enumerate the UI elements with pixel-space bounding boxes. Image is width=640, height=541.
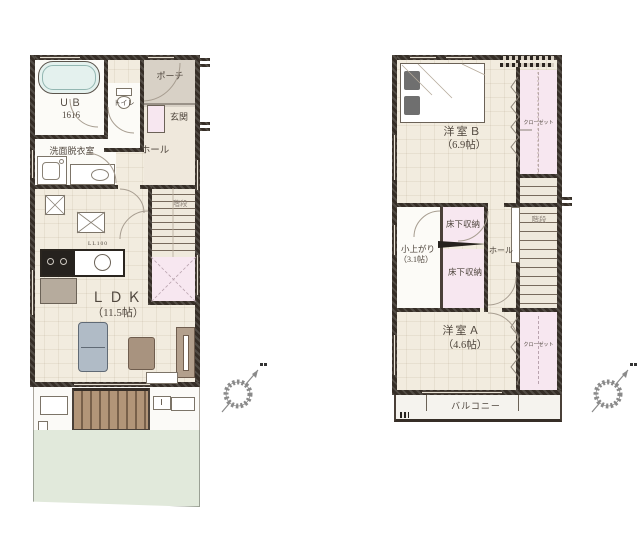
compass-icon-right	[586, 360, 638, 418]
label-closet-b: クローゼット	[521, 121, 556, 127]
wall	[516, 55, 520, 178]
closet-divider	[538, 316, 539, 384]
washer-drum	[42, 162, 60, 180]
wall	[30, 135, 108, 139]
label-underfloor-bottom: 床下収納	[443, 268, 487, 278]
bathtub-inner	[42, 65, 96, 90]
sink	[94, 254, 111, 271]
label-entrance: 玄関	[163, 112, 195, 122]
floor2-plan: 洋室Ｂ （6.9帖） クローゼット 床下収納 小上がり （3.1帖） 床下収納 …	[392, 55, 562, 395]
label-hall-2f: ホール	[486, 247, 516, 256]
pillow	[404, 71, 420, 90]
outer-wall-right	[195, 55, 200, 387]
label-bedroom-b: 洋室Ｂ	[423, 126, 503, 138]
faucet-mark	[161, 399, 162, 405]
compass-icon-left	[216, 360, 268, 418]
drain-hatch	[400, 412, 409, 418]
window	[40, 56, 80, 59]
wall	[516, 174, 562, 178]
label-kitchen-note: LL100	[80, 241, 116, 247]
floorplan-canvas: ポーチ 玄関 ＵＢ 1616 トイレ 洗面脱衣室 ホール 階段 LL100 ＬＤ…	[0, 0, 640, 541]
cabinet-square	[45, 195, 65, 215]
outer-wall-right	[557, 55, 562, 395]
sofa	[78, 322, 108, 372]
wall-mark	[200, 122, 210, 125]
bathtub	[38, 61, 100, 94]
bed	[400, 63, 485, 123]
sofa-seam	[81, 347, 105, 348]
label-underfloor-top: 床下収納	[441, 220, 485, 230]
window	[393, 335, 396, 375]
pillow	[404, 96, 420, 115]
wall	[392, 203, 484, 207]
window	[446, 56, 472, 59]
wall-mark	[200, 64, 210, 67]
tv-screen	[183, 335, 189, 371]
balcony-door-window	[422, 391, 502, 394]
washer-dial	[59, 159, 64, 164]
wall	[30, 185, 118, 189]
label-ub-size: 1616	[51, 110, 91, 120]
tv-board	[176, 327, 195, 378]
label-bedroom-a: 洋室Ａ	[422, 325, 502, 337]
refrigerator	[40, 278, 77, 304]
stove	[42, 251, 75, 275]
label-closet-a: クローゼット	[521, 343, 556, 349]
yard-box-small	[153, 396, 171, 410]
hatch-strip	[500, 56, 554, 68]
balcony-post	[518, 395, 519, 411]
step-box	[146, 372, 178, 384]
label-porch: ポーチ	[145, 71, 195, 81]
window	[196, 255, 199, 295]
label-stairs-2f: 階段	[524, 216, 554, 224]
label-bedroom-b-size: （6.9帖）	[424, 140, 504, 152]
floor2-stairs	[520, 178, 557, 312]
label-koagari: 小上がり	[396, 245, 440, 255]
window	[393, 135, 396, 180]
wall-mark	[562, 203, 572, 206]
floor1-plan: ポーチ 玄関 ＵＢ 1616 トイレ 洗面脱衣室 ホール 階段 LL100 ＬＤ…	[30, 55, 200, 387]
window	[410, 56, 436, 59]
window	[31, 270, 34, 315]
window	[196, 160, 199, 190]
wall-mark	[200, 128, 210, 131]
wood-deck	[72, 388, 150, 431]
label-bedroom-a-size: （4.6帖）	[425, 340, 505, 352]
room-porch	[142, 58, 197, 107]
balcony-post	[426, 395, 427, 411]
label-toilet: トイレ	[106, 100, 142, 108]
wall	[148, 185, 152, 305]
wall-mark	[200, 58, 210, 61]
label-ldk: ＬＤＫ	[78, 291, 158, 307]
label-balcony: バルコニー	[436, 401, 516, 411]
wall	[392, 308, 480, 312]
label-ldk-size: （11.5帖）	[78, 307, 158, 319]
kitchen-table	[77, 212, 105, 233]
vanity	[70, 164, 115, 185]
yard-box-right	[171, 397, 195, 411]
vanity-sink	[91, 169, 109, 181]
window	[148, 56, 174, 59]
label-stairs-1f: 階段	[165, 200, 195, 208]
living-table	[128, 337, 155, 370]
underfloor-storage-bottom	[443, 249, 484, 308]
closet-a	[520, 312, 557, 390]
label-koagari-size: （3.1帖）	[395, 256, 437, 265]
wall-mark	[562, 197, 572, 200]
washing-machine	[37, 156, 67, 185]
garden	[33, 430, 200, 507]
label-washroom: 洗面脱衣室	[36, 146, 108, 156]
burner	[47, 258, 54, 265]
deck-door-window	[74, 383, 150, 386]
kitchen-counter	[40, 249, 125, 277]
wall	[502, 308, 562, 312]
yard-box	[40, 396, 68, 415]
burner	[60, 258, 67, 265]
label-hall-1f: ホール	[130, 146, 180, 157]
hatch-row	[500, 63, 554, 67]
label-ub: ＵＢ	[51, 98, 91, 109]
hatch-row	[500, 56, 554, 60]
wall	[516, 312, 520, 390]
wall	[104, 55, 108, 139]
toilet-tank	[116, 88, 132, 96]
window	[31, 150, 34, 178]
outer-wall-left	[30, 55, 35, 387]
